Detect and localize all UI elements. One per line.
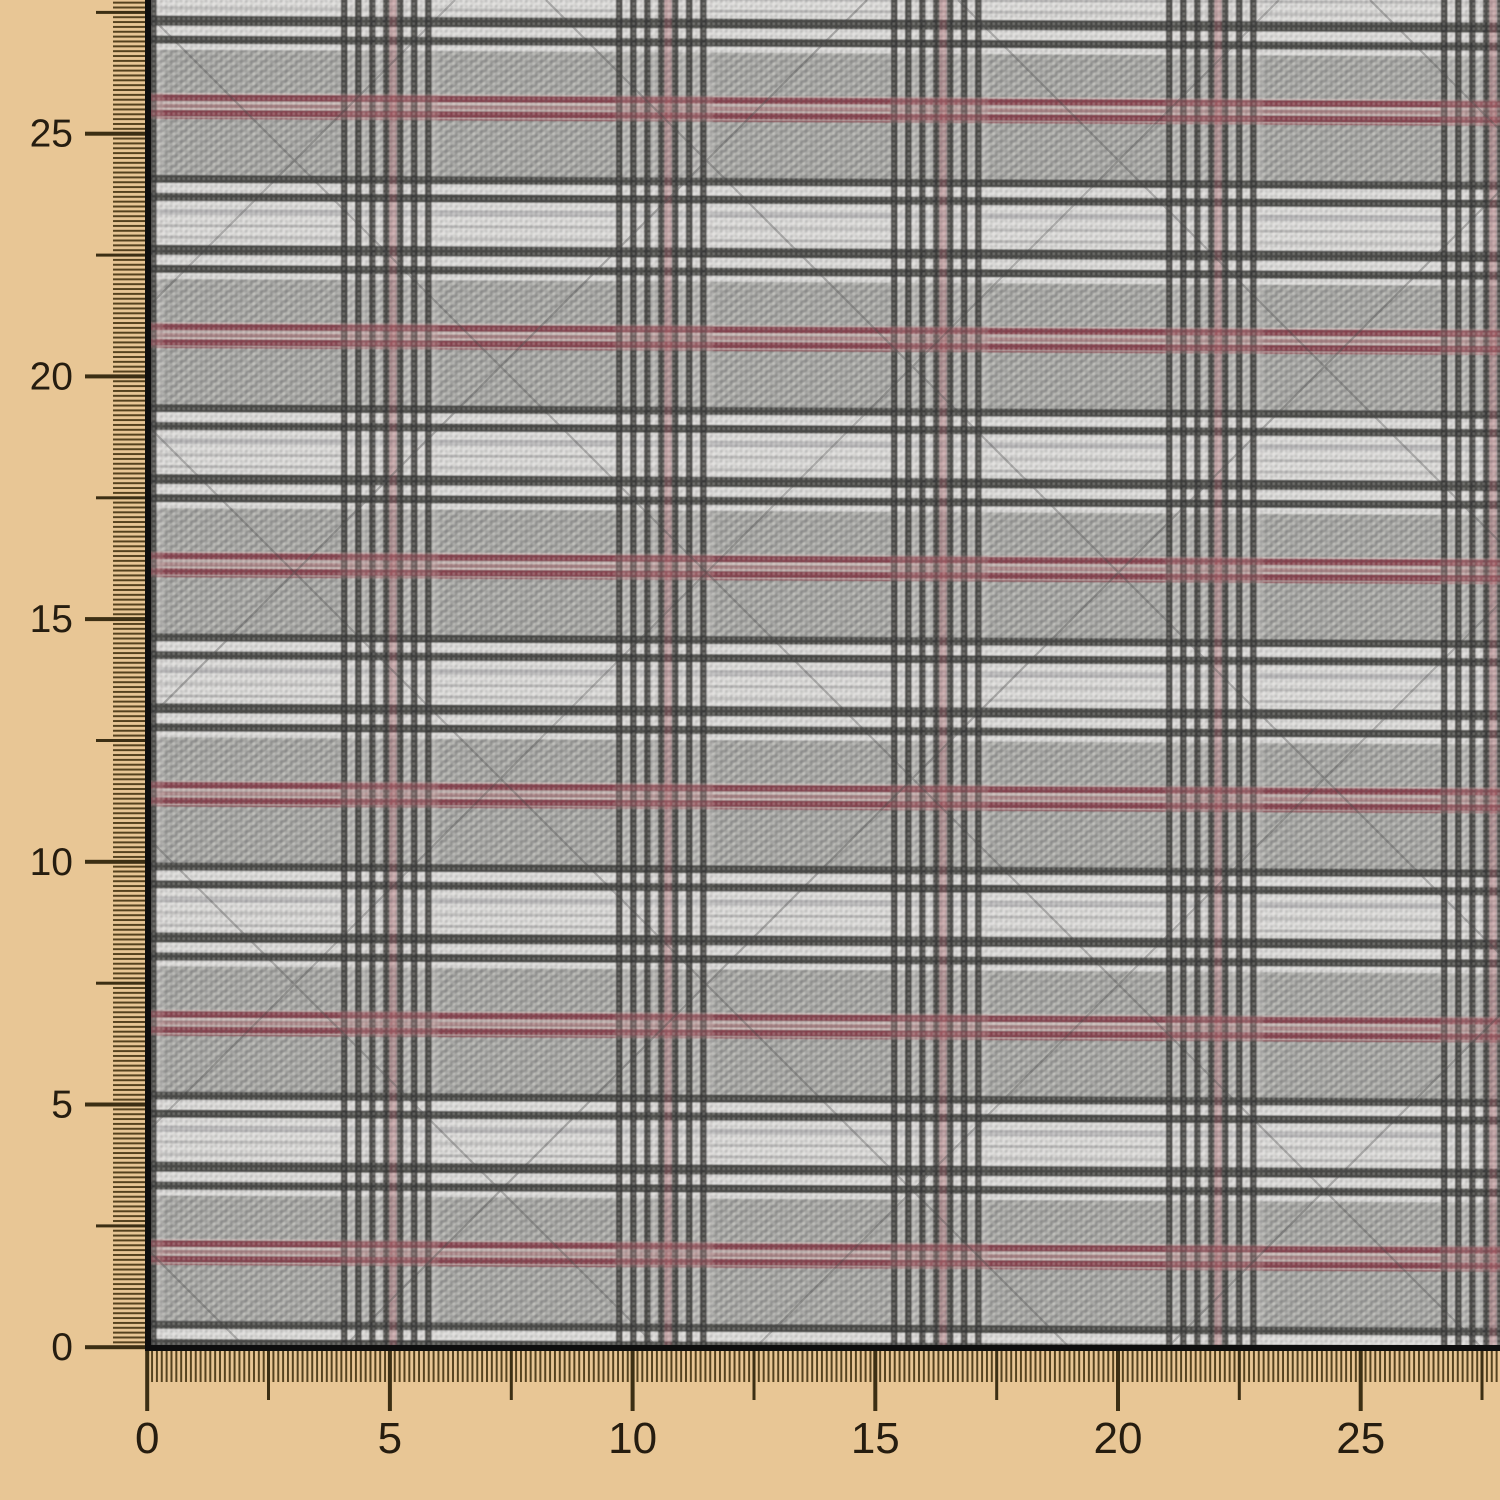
svg-text:5: 5: [378, 1414, 402, 1463]
svg-text:0: 0: [135, 1414, 159, 1463]
svg-text:5: 5: [51, 1084, 73, 1127]
svg-text:25: 25: [1336, 1414, 1385, 1463]
svg-text:10: 10: [608, 1414, 657, 1463]
svg-text:20: 20: [30, 355, 73, 398]
svg-text:10: 10: [30, 841, 73, 884]
svg-text:15: 15: [851, 1414, 900, 1463]
svg-text:0: 0: [51, 1326, 73, 1369]
svg-text:20: 20: [1094, 1414, 1143, 1463]
svg-text:25: 25: [30, 113, 73, 156]
svg-text:15: 15: [30, 598, 73, 641]
